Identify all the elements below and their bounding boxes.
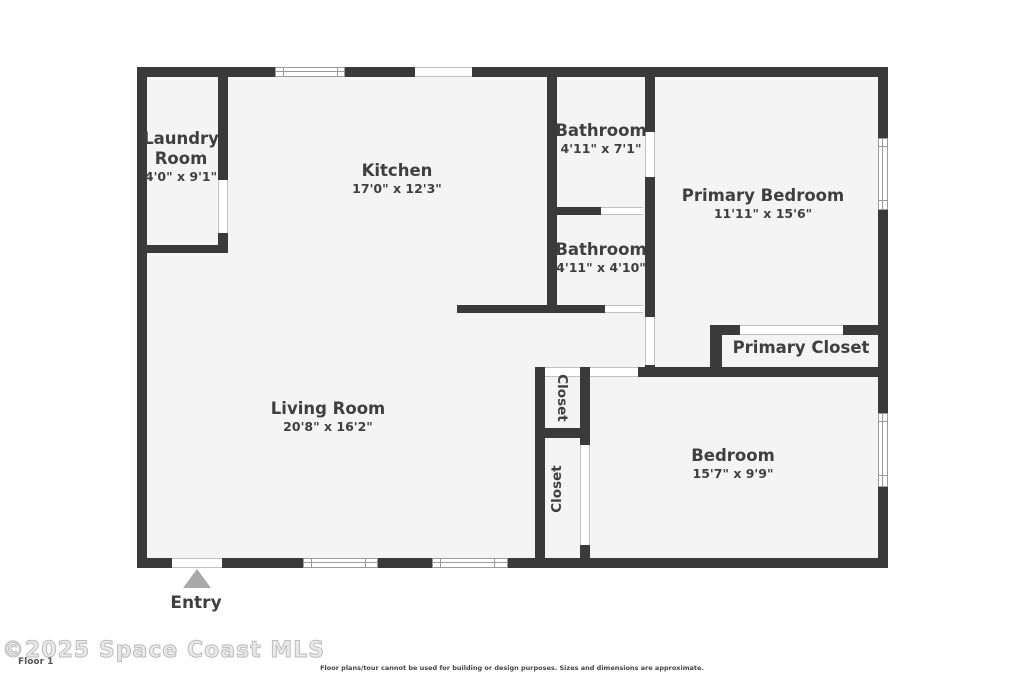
living-room-window-2 bbox=[432, 558, 508, 568]
kitchen-living-divider-wall bbox=[457, 305, 605, 313]
primary-bedroom-dims: 11'11" x 15'6" bbox=[682, 206, 844, 222]
laundry-room-name: Laundry Room bbox=[135, 129, 227, 169]
closet-upper-label: Closet bbox=[554, 374, 570, 421]
kitchen-window bbox=[275, 67, 345, 77]
bathroom-lower-dims: 4'11" x 4'10" bbox=[555, 260, 646, 276]
primary-bedroom-label: Primary Bedroom 11'11" x 15'6" bbox=[682, 186, 844, 222]
primary-closet-left-wall bbox=[710, 325, 722, 377]
closet-lower-right-stub-top bbox=[580, 438, 590, 445]
laundry-bottom-wall bbox=[137, 245, 228, 253]
living-room-dims: 20'8" x 16'2" bbox=[271, 419, 385, 435]
closet-lower-door-opening bbox=[580, 445, 590, 545]
bedroom-dims: 15'7" x 9'9" bbox=[691, 466, 775, 482]
bathroom-left-wall bbox=[547, 77, 557, 313]
bathroom-upper-dims: 4'11" x 7'1" bbox=[555, 141, 646, 157]
closet-lower-right-stub-bottom bbox=[580, 545, 590, 558]
bedroom-window bbox=[878, 413, 888, 487]
exterior-wall-top bbox=[137, 67, 888, 77]
bathroom-upper-name: Bathroom bbox=[555, 121, 646, 141]
closet-upper-bottom-wall bbox=[535, 428, 590, 438]
bedroom-label: Bedroom 15'7" x 9'9" bbox=[691, 446, 775, 482]
disclaimer-text: Floor plans/tour cannot be used for buil… bbox=[0, 664, 1024, 672]
floor-plan-page: Laundry Room 4'0" x 9'1" Kitchen 17'0" x… bbox=[0, 0, 1024, 683]
primary-bedroom-name: Primary Bedroom bbox=[682, 186, 844, 206]
bathroom-divider-door-opening bbox=[601, 207, 643, 215]
living-room-name: Living Room bbox=[271, 399, 385, 419]
closets-left-wall bbox=[535, 367, 545, 558]
bathroom-divider-wall bbox=[557, 207, 601, 215]
laundry-room-label: Laundry Room 4'0" x 9'1" bbox=[135, 129, 227, 185]
primary-closet-label: Primary Closet bbox=[733, 338, 870, 358]
bedroom-door-opening bbox=[590, 367, 638, 377]
primary-bedroom-window bbox=[878, 138, 888, 210]
laundry-room-dims: 4'0" x 9'1" bbox=[135, 169, 227, 185]
bedroom-name: Bedroom bbox=[691, 446, 775, 466]
closet-lower-label: Closet bbox=[549, 465, 565, 512]
kitchen-dims: 17'0" x 12'3" bbox=[352, 181, 442, 197]
closet-upper-name: Closet bbox=[554, 374, 570, 421]
primary-closet-door-opening bbox=[740, 325, 843, 335]
laundry-door-opening bbox=[218, 180, 228, 233]
bathroom-lower-label: Bathroom 4'11" x 4'10" bbox=[555, 240, 646, 276]
primary-bedroom-door-opening bbox=[645, 317, 655, 365]
closet-lower-name: Closet bbox=[549, 465, 565, 512]
kitchen-name: Kitchen bbox=[352, 161, 442, 181]
floor-area bbox=[137, 67, 888, 568]
bathroom-upper-label: Bathroom 4'11" x 7'1" bbox=[555, 121, 646, 157]
hallway-door-opening bbox=[605, 305, 643, 313]
kitchen-label: Kitchen 17'0" x 12'3" bbox=[352, 161, 442, 197]
living-room-window-1 bbox=[303, 558, 378, 568]
exterior-wall-bottom bbox=[137, 558, 888, 568]
entry-label: Entry bbox=[170, 593, 221, 613]
bathroom-lower-name: Bathroom bbox=[555, 240, 646, 260]
living-room-label: Living Room 20'8" x 16'2" bbox=[271, 399, 385, 435]
primary-closet-name: Primary Closet bbox=[733, 338, 870, 358]
kitchen-top-opening bbox=[415, 67, 472, 77]
entry-door-opening bbox=[172, 558, 222, 568]
entry-arrow-icon bbox=[183, 569, 211, 588]
